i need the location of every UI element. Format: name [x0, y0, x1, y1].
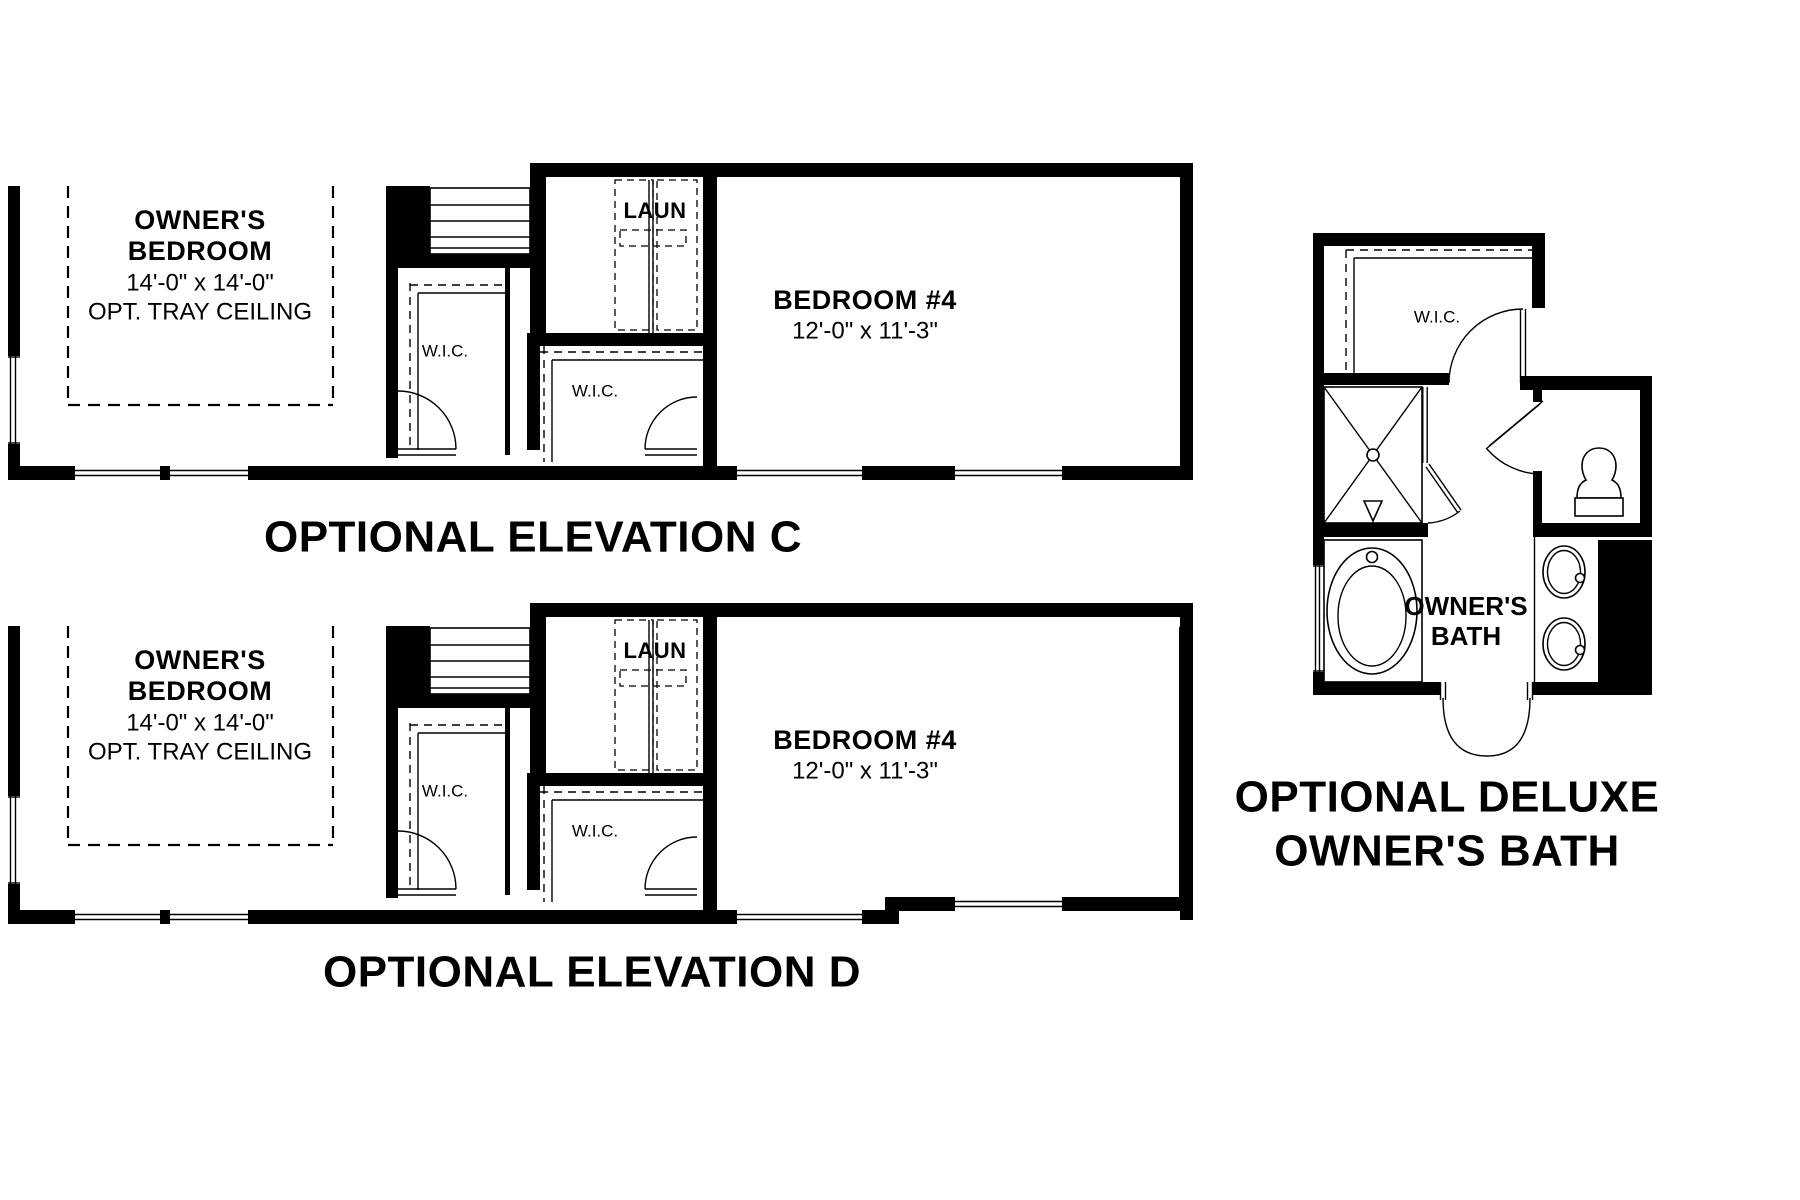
bath-labels: W.I.C. OWNER'S BATH: [1404, 307, 1527, 650]
bedroom4-dims: 12'-0" x 11'-3": [792, 317, 938, 344]
elevation-d-title: OPTIONAL ELEVATION D: [323, 948, 861, 997]
bath-double-door: [1441, 682, 1533, 756]
bath-window: [1313, 565, 1324, 672]
sink-faucet: [1576, 574, 1585, 583]
owners-bedroom-name-line2: BEDROOM: [128, 676, 273, 706]
vanity-sinks: [1535, 537, 1586, 682]
sink-faucet: [1576, 646, 1585, 655]
bedroom4-name: BEDROOM #4: [773, 725, 957, 755]
shower: [1324, 387, 1461, 523]
wic1-label: W.I.C.: [422, 341, 468, 360]
bath-room-label-line2: BATH: [1431, 621, 1501, 651]
elevation-c-title: OPTIONAL ELEVATION C: [264, 513, 802, 562]
vanity-counter: [1598, 540, 1652, 682]
bath-room-label-line1: OWNER'S: [1404, 591, 1527, 621]
owners-bedroom-name-line1: OWNER'S: [134, 645, 265, 675]
shower-head-marker: [1364, 501, 1382, 521]
elevation-d-bottom-wall: [8, 897, 1192, 924]
owners-bedroom-name-line2: BEDROOM: [128, 236, 273, 266]
owners-bedroom-name-line1: OWNER'S: [134, 205, 265, 235]
deluxe-bath-plan: W.I.C. OWNER'S BATH OPTIONAL DELUXE OWNE…: [1179, 233, 1659, 900]
floorplan-sheet: OWNER'S BEDROOM 14'-0" x 14'-0" OPT. TRA…: [0, 0, 1800, 1200]
deluxe-bath-title-line1: OPTIONAL DELUXE: [1235, 773, 1660, 822]
shower-door: [1423, 387, 1461, 523]
water-closet-door: [1486, 401, 1543, 474]
bedroom4-dims: 12'-0" x 11'-3": [792, 757, 938, 784]
toilet: [1575, 448, 1623, 516]
elevation-c-plan: OWNER'S BEDROOM 14'-0" x 14'-0" OPT. TRA…: [8, 163, 1193, 562]
elevation-c-bottom-wall: [8, 466, 1192, 480]
owners-bedroom-dims: 14'-0" x 14'-0": [126, 269, 274, 296]
deluxe-bath-title-line2: OWNER'S BATH: [1274, 827, 1620, 876]
wic2-label: W.I.C.: [572, 821, 618, 840]
laundry-label: LAUN: [623, 198, 686, 223]
elevation-d-plan: OWNER'S BEDROOM 14'-0" x 14'-0" OPT. TRA…: [8, 603, 1193, 997]
tub-faucet: [1367, 552, 1378, 563]
owners-bedroom-note: OPT. TRAY CEILING: [88, 738, 312, 765]
laundry-label: LAUN: [623, 638, 686, 663]
bedroom4-name: BEDROOM #4: [773, 285, 957, 315]
owners-bedroom-dims: 14'-0" x 14'-0": [126, 709, 274, 736]
context-wall: [1179, 627, 1189, 900]
wic1-label: W.I.C.: [422, 781, 468, 800]
floorplan-canvas: OWNER'S BEDROOM 14'-0" x 14'-0" OPT. TRA…: [0, 0, 1800, 1200]
shower-drain: [1367, 449, 1379, 461]
bath-wic-label: W.I.C.: [1414, 307, 1460, 326]
owners-bedroom-note: OPT. TRAY CEILING: [88, 298, 312, 325]
wic2-label: W.I.C.: [572, 381, 618, 400]
